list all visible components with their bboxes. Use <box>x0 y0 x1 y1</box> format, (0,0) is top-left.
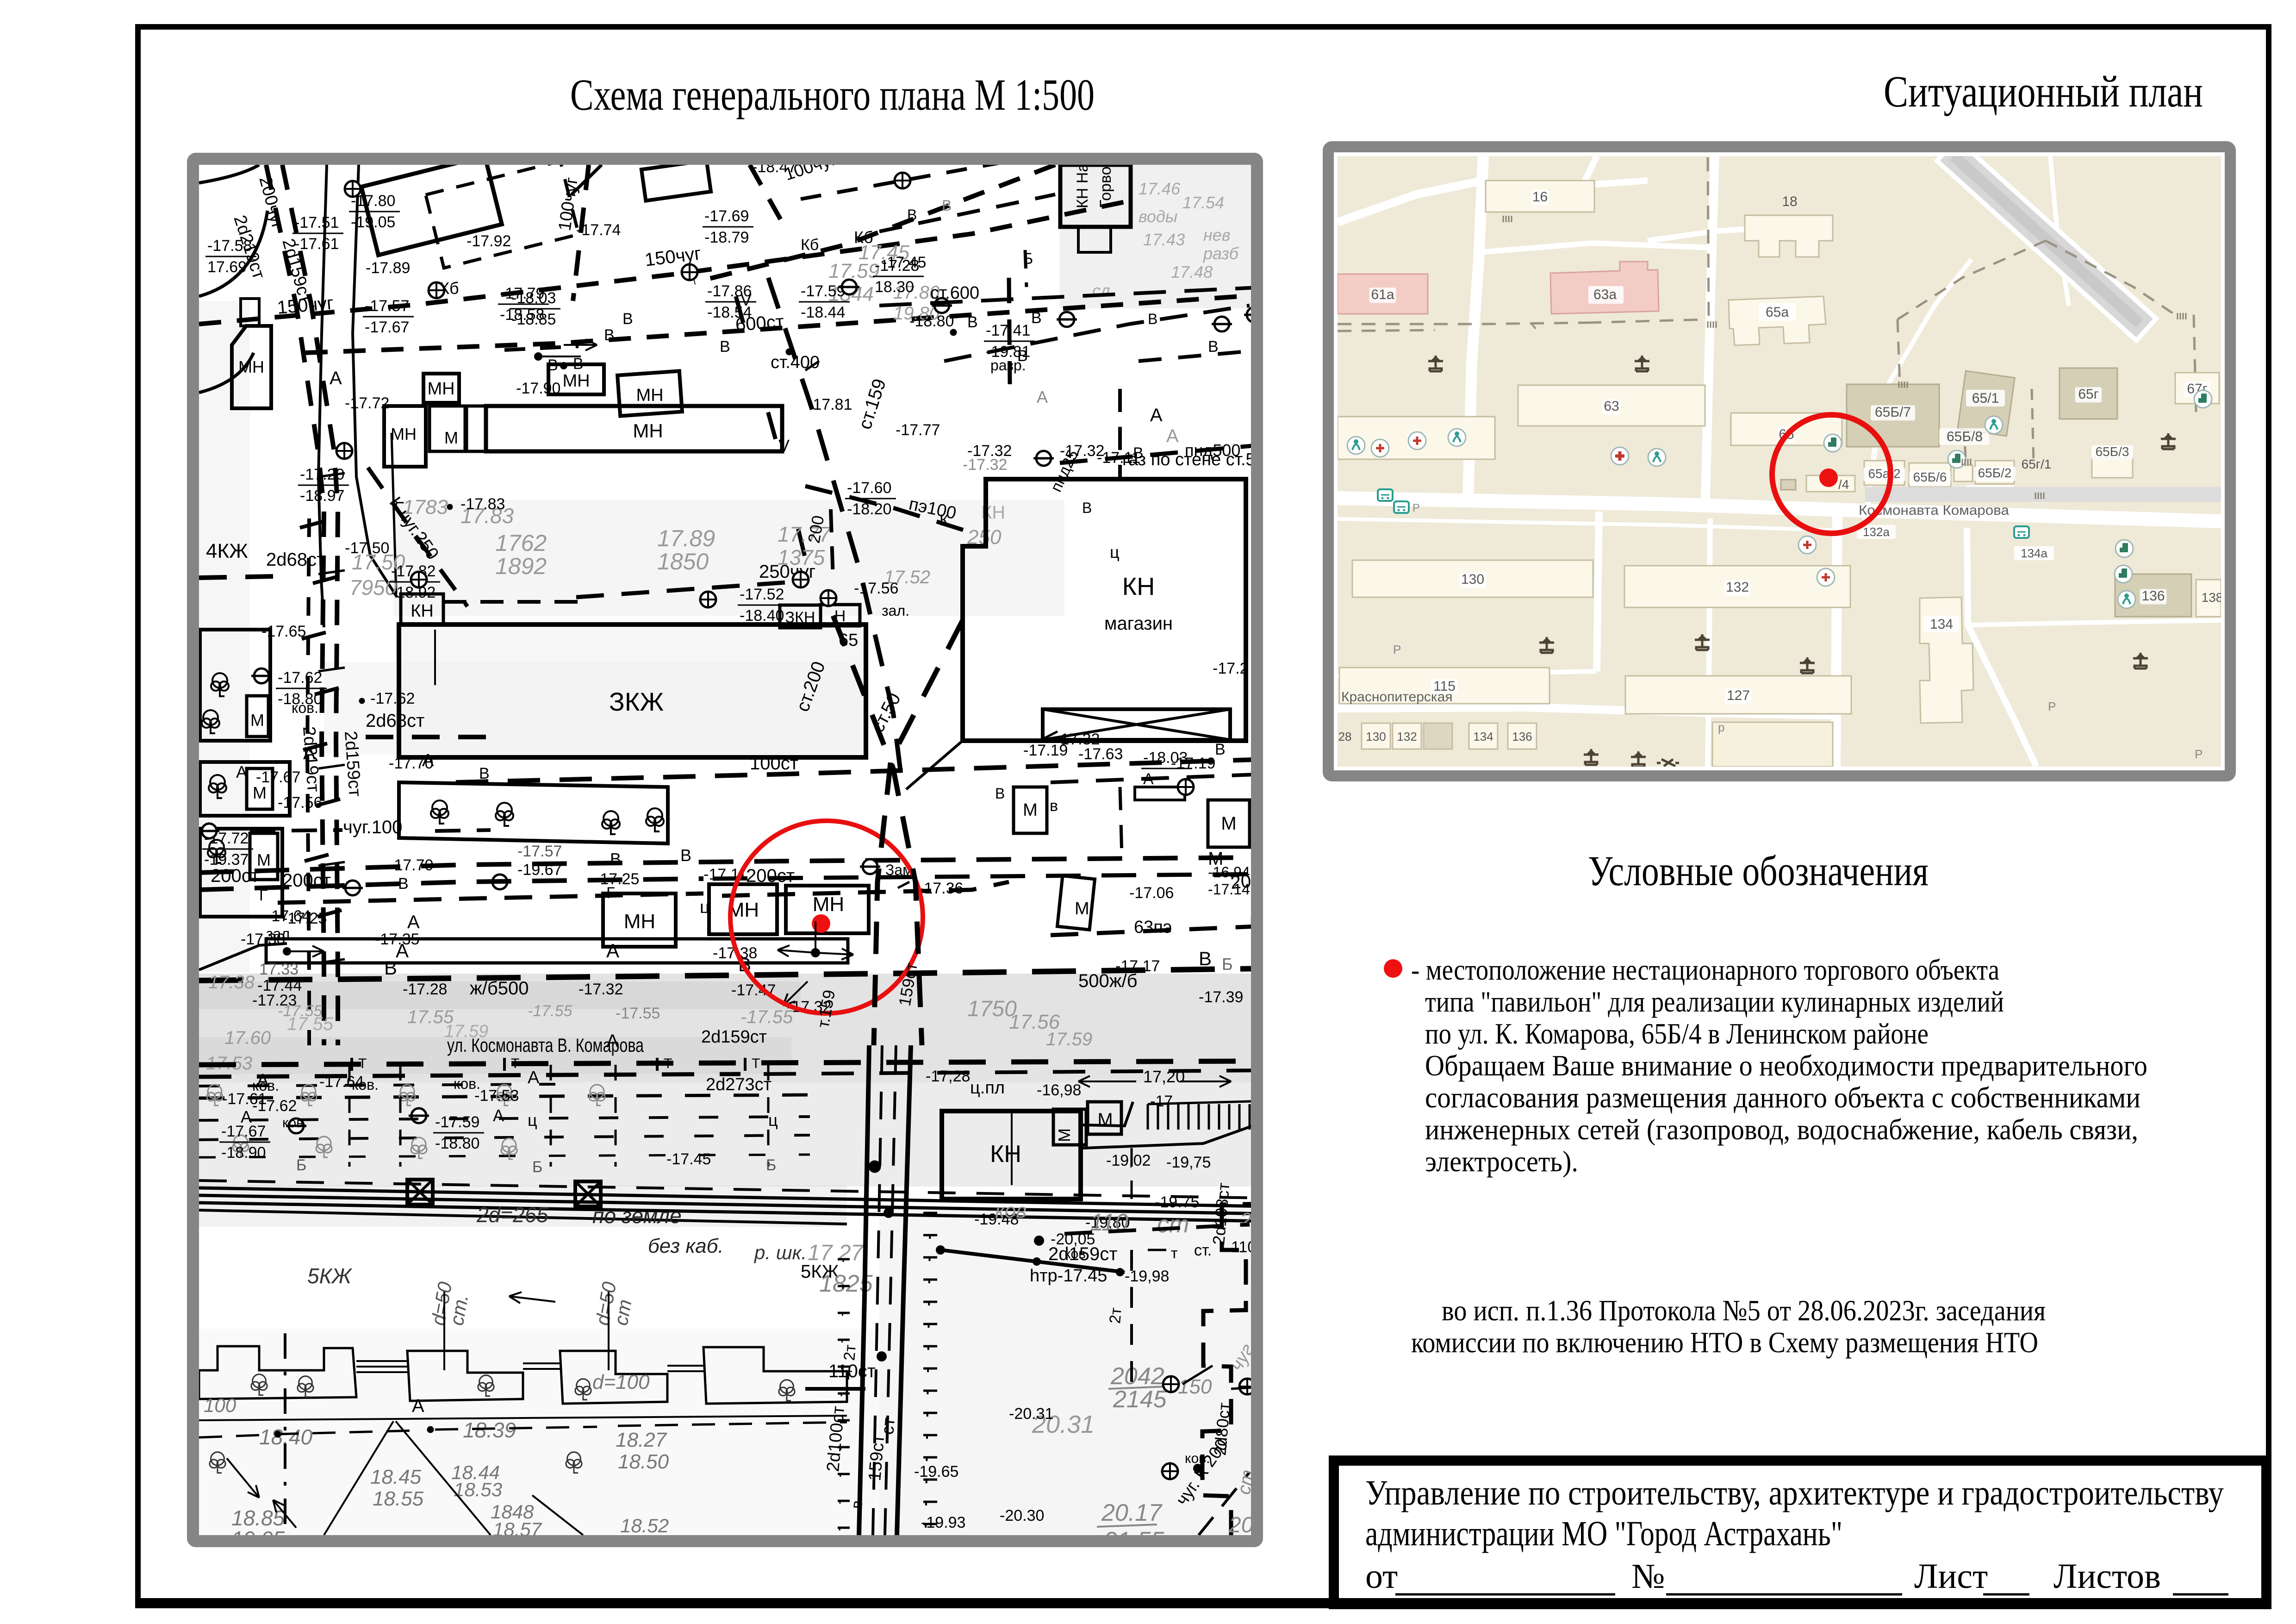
svg-text:по земле: по земле <box>592 1204 682 1228</box>
svg-text:в: в <box>848 1499 866 1509</box>
svg-text:МН: МН <box>238 357 264 376</box>
svg-text:65Б/2: 65Б/2 <box>1978 466 2012 480</box>
svg-text:В: В <box>384 957 397 979</box>
svg-text:В: В <box>622 310 633 328</box>
svg-text:Б: Б <box>766 1156 776 1174</box>
svg-text:136: 136 <box>1512 730 1532 743</box>
svg-text:-17.57: -17.57 <box>365 297 409 315</box>
svg-text:М: М <box>1055 1128 1074 1142</box>
svg-text:ков.: ков. <box>292 700 318 716</box>
svg-text:2d=265: 2d=265 <box>476 1203 548 1227</box>
svg-text:2d159ст: 2d159ст <box>1048 1244 1118 1264</box>
svg-text:65а/2: 65а/2 <box>1868 467 1900 481</box>
svg-text:нев: нев <box>1203 225 1231 244</box>
svg-text:1850: 1850 <box>657 549 709 575</box>
svg-text:18.55: 18.55 <box>373 1487 424 1510</box>
svg-text:в: в <box>1050 797 1058 815</box>
svg-text:А: А <box>1037 387 1048 406</box>
svg-text:-16.94: -16.94 <box>1208 864 1250 881</box>
svg-text:18.53: 18.53 <box>454 1479 502 1500</box>
svg-text:-19,75: -19,75 <box>1166 1154 1211 1171</box>
svg-text:500ж/б: 500ж/б <box>1078 971 1138 991</box>
svg-text:Кб: Кб <box>801 236 819 254</box>
svg-text:-17.56: -17.56 <box>278 794 322 812</box>
svg-text:Б: Б <box>1222 955 1233 974</box>
svg-text:-19.37: -19.37 <box>204 851 249 868</box>
svg-text:2145: 2145 <box>1113 1386 1167 1413</box>
svg-text:17 55: 17 55 <box>287 1014 334 1034</box>
svg-text:2d273ст: 2d273ст <box>706 1075 772 1094</box>
svg-text:ц: ц <box>700 898 710 917</box>
svg-text:-17.55: -17.55 <box>528 1002 572 1020</box>
svg-text:-17: -17 <box>1150 1093 1173 1110</box>
svg-text:-17.19: -17.19 <box>1171 755 1215 772</box>
svg-text:-17.55: -17.55 <box>740 1007 793 1027</box>
svg-text:ж/б500: ж/б500 <box>470 978 529 999</box>
svg-text:65г: 65г <box>2078 387 2098 402</box>
svg-text:-18.20: -18.20 <box>847 500 891 518</box>
svg-text:134а: 134а <box>2021 546 2047 560</box>
svg-text:-17.32: -17.32 <box>579 981 623 998</box>
svg-text:А: А <box>236 762 247 781</box>
svg-text:ст: ст <box>878 1417 899 1436</box>
svg-text:-18.97: -18.97 <box>300 487 344 505</box>
svg-text:без каб.: без каб. <box>648 1235 724 1257</box>
svg-text:Т: Т <box>752 1056 760 1071</box>
svg-text:-17.67: -17.67 <box>221 1123 266 1140</box>
svg-text:р: р <box>1718 720 1724 734</box>
svg-text:20.17: 20.17 <box>1101 1499 1163 1526</box>
svg-text:А: А <box>606 1031 619 1051</box>
svg-text:р. шк.: р. шк. <box>753 1242 807 1263</box>
svg-text:-17.80: -17.80 <box>351 192 395 210</box>
svg-text:-17.62: -17.62 <box>252 1097 297 1115</box>
svg-text:А: А <box>303 743 316 763</box>
svg-text:-17.92: -17.92 <box>467 232 511 250</box>
svg-text:17.33: 17.33 <box>259 961 299 978</box>
svg-text:200ст: 200ст <box>211 866 259 886</box>
svg-text:65Б/6: 65Б/6 <box>1913 470 1947 484</box>
svg-text:А: А <box>1150 405 1163 425</box>
svg-text:-17.36: -17.36 <box>919 880 963 897</box>
svg-text:В: В <box>907 206 917 223</box>
svg-text:-17.28: -17.28 <box>403 981 447 998</box>
svg-text:администрации МО "Город Астрах: администрации МО "Город Астрахань" <box>1365 1514 1842 1553</box>
svg-text:ц: ц <box>528 1111 537 1130</box>
svg-text:2d68ст: 2d68ст <box>366 711 424 731</box>
svg-text:132: 132 <box>1397 730 1417 743</box>
svg-text:ков.: ков. <box>282 1115 307 1131</box>
svg-text:А: А <box>528 1068 540 1087</box>
svg-text:65Б/3: 65Б/3 <box>2096 444 2129 459</box>
svg-text:18.39: 18.39 <box>463 1418 516 1442</box>
svg-text:-17.28: -17.28 <box>875 257 919 275</box>
svg-text:магазин: магазин <box>1104 613 1173 634</box>
svg-text:МН: МН <box>427 379 454 399</box>
svg-text:Листов: Листов <box>2053 1557 2161 1596</box>
svg-text:150: 150 <box>1178 1375 1212 1398</box>
svg-text:ц.пл: ц.пл <box>970 1078 1005 1098</box>
svg-text:Условные обозначения: Условные обозначения <box>1588 847 1929 894</box>
svg-text:d=100: d=100 <box>592 1371 650 1393</box>
svg-text:МН: МН <box>624 910 655 933</box>
svg-text:-17.89: -17.89 <box>366 259 410 277</box>
svg-text:2d68ст: 2d68ст <box>266 550 325 570</box>
svg-text:ц: ц <box>1110 543 1120 562</box>
svg-text:В: В <box>479 765 490 782</box>
svg-text:Б: Б <box>532 1158 542 1176</box>
svg-text:-19.65: -19.65 <box>914 1463 958 1480</box>
svg-text:Управление по строительству, а: Управление по строительству, архитектуре… <box>1365 1474 2224 1512</box>
svg-text:В: В <box>1017 347 1028 365</box>
svg-text:А: А <box>606 940 619 962</box>
svg-text:-17.86: -17.86 <box>707 282 752 300</box>
svg-text:А: А <box>1166 426 1179 446</box>
svg-text:А: А <box>257 1071 269 1090</box>
svg-text:-17.19: -17.19 <box>1023 742 1068 759</box>
svg-text:разб: разб <box>1203 244 1239 263</box>
svg-text:М: М <box>1097 1110 1113 1130</box>
svg-text:-17.83: -17.83 <box>460 495 505 513</box>
svg-text:-18.90: -18.90 <box>221 1144 266 1162</box>
svg-text:-18.03: -18.03 <box>511 289 556 307</box>
svg-text:КН: КН <box>990 1141 1021 1168</box>
svg-text:28: 28 <box>1338 730 1352 743</box>
svg-text:ков.: ков. <box>352 1076 379 1093</box>
svg-text:-17.58: -17.58 <box>207 237 252 255</box>
svg-text:-17.77: -17.77 <box>896 421 940 439</box>
svg-text:65г/1: 65г/1 <box>2022 457 2052 471</box>
svg-text:ст: ст <box>610 1298 636 1327</box>
svg-text:Р: Р <box>2195 747 2203 761</box>
svg-text:-17.25: -17.25 <box>595 870 639 888</box>
svg-text:-17.55: -17.55 <box>616 1005 660 1022</box>
svg-text:-17.50: -17.50 <box>345 539 389 557</box>
svg-text:Б: Б <box>296 1156 306 1174</box>
svg-text:17.46: 17.46 <box>1139 179 1181 198</box>
svg-text:В: В <box>680 846 691 865</box>
svg-text:17.43: 17.43 <box>1143 230 1185 249</box>
svg-text:К: К <box>940 512 949 529</box>
svg-text:63а: 63а <box>1593 287 1617 302</box>
svg-text:-18.54: -18.54 <box>707 304 752 321</box>
svg-text:А: А <box>1143 770 1154 788</box>
svg-text:от: от <box>1365 1557 1398 1596</box>
svg-text:В: В <box>1148 311 1157 327</box>
svg-text:-19,02: -19,02 <box>1106 1152 1151 1169</box>
svg-text:18.27: 18.27 <box>616 1429 667 1451</box>
svg-text:17.60: 17.60 <box>224 1028 271 1048</box>
svg-text:-17.62: -17.62 <box>370 690 415 707</box>
svg-text:65Б/7: 65Б/7 <box>1875 405 1911 420</box>
svg-text:17.59: 17.59 <box>1046 1029 1092 1049</box>
svg-text:М: М <box>250 711 264 730</box>
svg-text:ков: ков <box>995 1199 1027 1222</box>
svg-text:М: М <box>1221 813 1236 834</box>
svg-text:во исп. п.1.36 Протокола №5 от: во исп. п.1.36 Протокола №5 от 28.06.202… <box>1442 1294 2046 1327</box>
svg-text:7950: 7950 <box>349 575 397 600</box>
svg-text:В: В <box>1208 338 1219 356</box>
svg-text:1762: 1762 <box>495 530 547 556</box>
svg-text:-17.32: -17.32 <box>963 456 1007 474</box>
svg-text:М: М <box>1023 800 1038 820</box>
svg-text:130: 130 <box>1366 730 1386 743</box>
svg-text:17.89: 17.89 <box>657 525 715 551</box>
svg-text:63: 63 <box>1604 399 1619 414</box>
svg-text:Р: Р <box>1412 502 1420 514</box>
svg-text:МН: МН <box>636 386 663 405</box>
svg-text:В: В <box>1082 500 1092 516</box>
svg-text:МН: МН <box>813 893 844 916</box>
svg-text:159ст: 159ст <box>865 1434 889 1482</box>
svg-text:-17.62: -17.62 <box>278 669 322 687</box>
svg-text:200ст: 200ст <box>282 870 331 891</box>
svg-text:132: 132 <box>1726 580 1749 595</box>
svg-text:17,20: 17,20 <box>1143 1067 1185 1086</box>
svg-text:МН: МН <box>633 420 663 442</box>
svg-text:сл.: сл. <box>1092 281 1114 300</box>
svg-text:18.45: 18.45 <box>370 1466 422 1488</box>
svg-text:-20.30: -20.30 <box>1000 1507 1044 1524</box>
svg-text:Краснопитерская: Краснопитерская <box>1341 689 1453 705</box>
svg-text:18.50: 18.50 <box>618 1450 669 1473</box>
svg-text:-17.53: -17.53 <box>474 1087 519 1105</box>
svg-text:Схема генерального плана М 1:5: Схема генерального плана М 1:500 <box>570 70 1095 119</box>
svg-text:65Б/8: 65Б/8 <box>1947 429 1983 444</box>
svg-text:чуг.100: чуг.100 <box>343 817 402 837</box>
svg-text:130: 130 <box>1461 572 1484 587</box>
svg-text:65а: 65а <box>1766 305 1789 320</box>
svg-text:-17.56: -17.56 <box>854 580 898 597</box>
svg-text:электросеть).: электросеть). <box>1425 1145 1578 1178</box>
svg-text:134: 134 <box>1930 617 1953 632</box>
svg-text:-17.81: -17.81 <box>808 396 852 413</box>
svg-text:В: В <box>1199 948 1212 969</box>
svg-text:-17.57: -17.57 <box>517 843 562 860</box>
svg-text:-17.74: -17.74 <box>576 221 621 239</box>
svg-text:17.48: 17.48 <box>1171 262 1213 281</box>
svg-text:газ по стене ст.57: газ по стене ст.57 <box>1122 450 1265 469</box>
svg-text:В: В <box>995 785 1005 802</box>
svg-text:132а: 132а <box>1863 525 1890 539</box>
svg-text:Обращаем Ваше внимание о необх: Обращаем Ваше внимание о необходимости п… <box>1425 1049 2147 1082</box>
svg-text:-16,98: -16,98 <box>1037 1081 1081 1099</box>
svg-text:18: 18 <box>1782 194 1797 209</box>
svg-text:-17.2: -17.2 <box>1213 660 1249 677</box>
svg-text:КН: КН <box>411 601 434 621</box>
svg-text:ц: ц <box>768 1111 778 1130</box>
svg-text:100ст: 100ст <box>750 753 798 774</box>
svg-text:Р: Р <box>1393 643 1401 656</box>
svg-text:типа "павильон" для реализации: типа "павильон" для реализации кулинарны… <box>1425 985 2004 1018</box>
svg-text:МН: МН <box>391 425 417 443</box>
svg-text:63пэ: 63пэ <box>1134 918 1172 937</box>
svg-text:М: М <box>444 428 458 447</box>
svg-text:2d159ст: 2d159ст <box>701 1027 767 1047</box>
svg-text:по ул. К. Комарова, 65Б/4 в Ле: по ул. К. Комарова, 65Б/4 в Ленинском ра… <box>1425 1017 1929 1050</box>
svg-text:2т: 2т <box>1106 1307 1125 1324</box>
svg-text:В: В <box>942 197 952 214</box>
svg-text:-17.61: -17.61 <box>294 235 339 253</box>
svg-text:А: А <box>422 751 434 770</box>
svg-text:/4: /4 <box>1838 477 1849 492</box>
svg-text:134: 134 <box>1473 730 1493 743</box>
svg-text:16: 16 <box>1532 189 1548 205</box>
svg-text:В: В <box>610 849 621 868</box>
svg-text:17.69: 17.69 <box>207 258 247 276</box>
svg-text:т: т <box>1171 1245 1178 1262</box>
svg-text:-17.59: -17.59 <box>435 1113 479 1131</box>
svg-text:-19.05: -19.05 <box>351 213 395 231</box>
svg-text:-17.06: -17.06 <box>1129 884 1174 902</box>
svg-text:-17.39: -17.39 <box>1199 988 1243 1006</box>
svg-text:-18.85: -18.85 <box>511 311 556 328</box>
svg-text:В: В <box>720 338 730 356</box>
svg-text:Лист: Лист <box>1914 1557 1988 1596</box>
svg-text:ЗКЖ: ЗКЖ <box>609 687 664 716</box>
svg-text:согласования размещения данног: согласования размещения данного объекта … <box>1425 1081 2140 1114</box>
svg-text:-17.67: -17.67 <box>365 319 409 336</box>
svg-text:ЗКН: ЗКН <box>785 609 815 626</box>
svg-text:МН: МН <box>562 371 590 391</box>
svg-text:-18.79: -18.79 <box>704 229 749 246</box>
svg-text:2т: 2т <box>840 1344 859 1362</box>
svg-text:17 27: 17 27 <box>808 1241 864 1265</box>
svg-text:-17.51: -17.51 <box>294 214 339 231</box>
svg-text:-17.59: -17.59 <box>801 282 845 300</box>
svg-text:-17.14: -17.14 <box>1208 881 1250 898</box>
svg-text:Р: Р <box>2048 700 2056 713</box>
svg-text:-17.45: -17.45 <box>666 1150 711 1168</box>
svg-text:17.38: 17.38 <box>208 972 255 993</box>
svg-text:hтр-17.45: hтр-17.45 <box>1030 1266 1107 1286</box>
svg-text:комиссии по включению НТО в Сх: комиссии по включению НТО в Схему размещ… <box>1411 1326 2038 1359</box>
svg-text:Г: Г <box>259 887 268 904</box>
svg-text:В: В <box>604 326 615 344</box>
svg-text:5КЖ: 5КЖ <box>307 1264 353 1288</box>
svg-text:Т: Т <box>358 1056 367 1071</box>
svg-text:-18.40: -18.40 <box>740 607 784 625</box>
svg-text:А: А <box>412 1396 424 1416</box>
svg-text:-17.60: -17.60 <box>847 479 891 497</box>
svg-text:Т: Т <box>664 1056 672 1071</box>
svg-text:61а: 61а <box>1371 287 1394 302</box>
svg-text:-17.90: -17.90 <box>516 380 560 397</box>
svg-text:- местоположение нестационарно: - местоположение нестационарного торгово… <box>1411 953 1999 986</box>
svg-text:КН: КН <box>1122 573 1155 600</box>
svg-text:М: М <box>1075 899 1089 918</box>
svg-text:-19.93: -19.93 <box>921 1514 965 1531</box>
svg-text:-17.69: -17.69 <box>704 207 749 225</box>
svg-text:инженерных сетей (газопровод,: инженерных сетей (газопровод, водоснабже… <box>1425 1113 2138 1146</box>
svg-text:65/1: 65/1 <box>1972 391 1999 406</box>
svg-text:4КЖ: 4КЖ <box>206 540 248 562</box>
svg-text:-20.31: -20.31 <box>1009 1405 1053 1423</box>
svg-text:В: В <box>967 313 978 331</box>
svg-text:А: А <box>407 912 420 932</box>
svg-text:№: № <box>1631 1557 1665 1596</box>
svg-text:Т: Т <box>511 1056 519 1071</box>
svg-text:1892: 1892 <box>495 553 547 579</box>
svg-text:ст: ст <box>1157 1211 1189 1238</box>
svg-text:-17,28: -17,28 <box>926 1068 970 1085</box>
svg-text:А: А <box>330 368 342 388</box>
svg-text:100: 100 <box>204 1394 236 1416</box>
svg-text:-17.20: -17.20 <box>300 466 344 483</box>
svg-text:-17.52: -17.52 <box>740 586 784 603</box>
svg-text:М: М <box>253 783 267 802</box>
svg-text:-18.44: -18.44 <box>801 304 845 321</box>
svg-text:-17.35: -17.35 <box>375 931 419 948</box>
svg-text:127: 127 <box>1727 688 1750 703</box>
svg-text:-17.25: -17.25 <box>282 910 327 927</box>
svg-text:138: 138 <box>2202 590 2223 605</box>
svg-text:воды: воды <box>1139 207 1177 226</box>
svg-text:зал.: зал. <box>882 602 909 619</box>
svg-text:17.59: 17.59 <box>444 1022 488 1041</box>
svg-text:18.30: 18.30 <box>875 278 914 296</box>
svg-text:136: 136 <box>2141 588 2165 604</box>
svg-text:17.54: 17.54 <box>1182 193 1224 212</box>
svg-text:Ситуационный план: Ситуационный план <box>1884 67 2203 116</box>
svg-text:В: В <box>1215 741 1226 758</box>
svg-text:-18.80: -18.80 <box>909 312 954 330</box>
svg-text:-17.72: -17.72 <box>345 394 389 412</box>
svg-text:-19.75: -19.75 <box>1155 1193 1199 1211</box>
svg-text:В: В <box>1031 309 1042 327</box>
svg-text:А: А <box>493 1106 504 1125</box>
